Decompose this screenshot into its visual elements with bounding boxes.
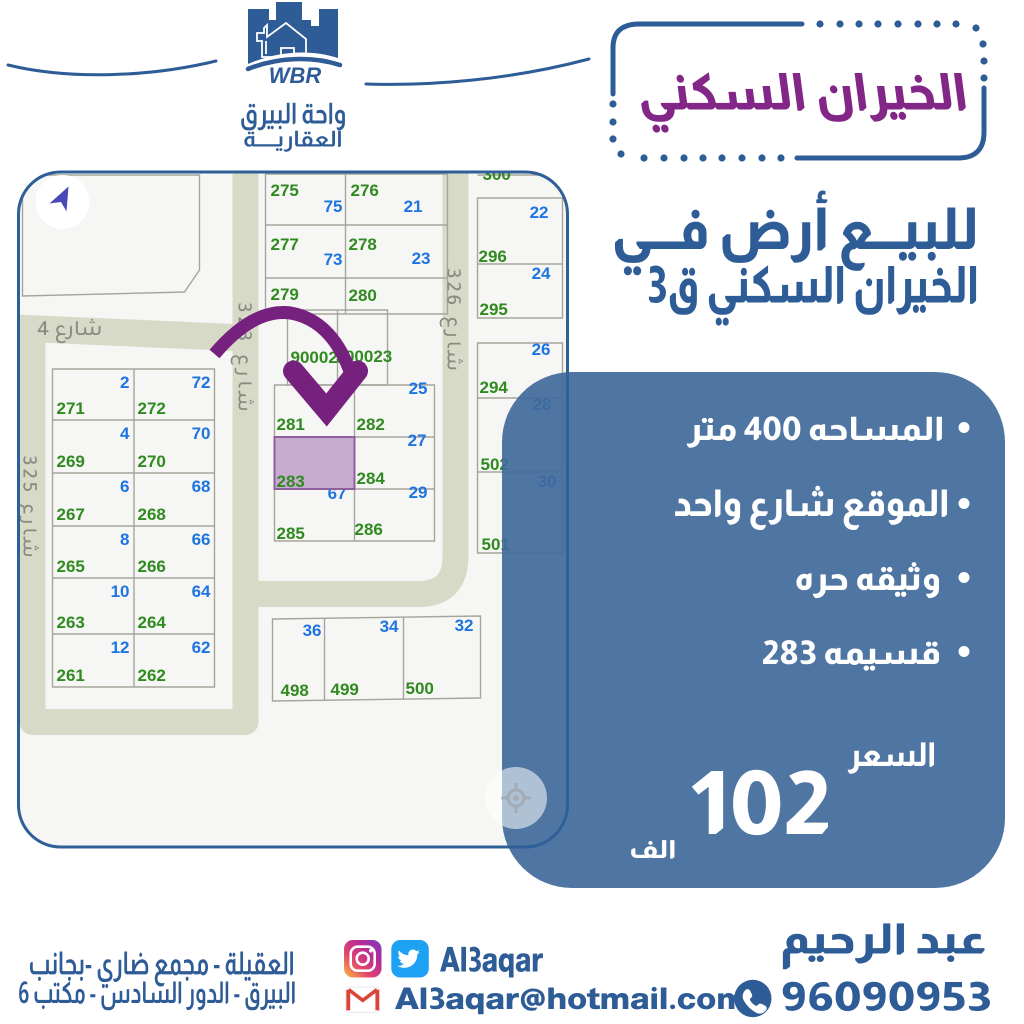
svg-text:284: 284 [357,469,386,488]
svg-text:286: 286 [355,520,383,539]
svg-text:62: 62 [192,638,211,657]
svg-text:24: 24 [532,264,551,283]
svg-text:294: 294 [480,378,509,397]
svg-text:296: 296 [479,247,507,266]
svg-text:23: 23 [412,249,431,268]
svg-text:8: 8 [120,530,129,549]
svg-text:271: 271 [57,399,85,418]
svg-text:267: 267 [57,505,85,524]
svg-text:277: 277 [271,235,299,254]
svg-text:73: 73 [324,250,343,269]
svg-text:283: 283 [277,472,305,491]
svg-text:278: 278 [349,235,377,254]
svg-text:36: 36 [303,621,322,640]
svg-text:70: 70 [192,424,211,443]
svg-text:21: 21 [404,197,423,216]
svg-text:72: 72 [192,373,211,392]
svg-text:22: 22 [530,203,549,222]
svg-text:270: 270 [138,452,166,471]
svg-text:263: 263 [57,613,85,632]
svg-text:6: 6 [120,477,129,496]
svg-text:12: 12 [111,638,130,657]
svg-text:266: 266 [138,557,166,576]
svg-text:279: 279 [271,285,299,304]
svg-text:268: 268 [138,505,166,524]
svg-text:66: 66 [192,530,211,549]
svg-text:282: 282 [357,415,385,434]
svg-text:281: 281 [277,415,305,434]
svg-text:285: 285 [277,524,305,543]
svg-text:64: 64 [192,582,211,601]
svg-text:4: 4 [120,424,130,443]
svg-text:32: 32 [455,616,474,635]
svg-text:265: 265 [57,557,85,576]
svg-text:26: 26 [532,340,551,359]
svg-text:34: 34 [380,617,399,636]
svg-text:27: 27 [408,431,427,450]
svg-text:25: 25 [409,379,428,398]
svg-text:68: 68 [192,477,211,496]
svg-text:499: 499 [331,680,359,699]
svg-text:2: 2 [120,373,129,392]
svg-text:276: 276 [351,181,379,200]
svg-text:10: 10 [111,582,130,601]
svg-text:272: 272 [138,399,166,418]
svg-text:29: 29 [409,483,428,502]
svg-text:264: 264 [138,613,167,632]
svg-text:280: 280 [349,286,377,305]
svg-text:WBR: WBR [269,63,322,88]
svg-text:262: 262 [138,666,166,685]
svg-text:275: 275 [271,181,299,200]
svg-text:75: 75 [324,197,343,216]
svg-text:498: 498 [281,681,309,700]
svg-text:269: 269 [57,452,85,471]
svg-text:295: 295 [480,300,508,319]
svg-text:500: 500 [406,679,434,698]
svg-text:261: 261 [57,666,85,685]
